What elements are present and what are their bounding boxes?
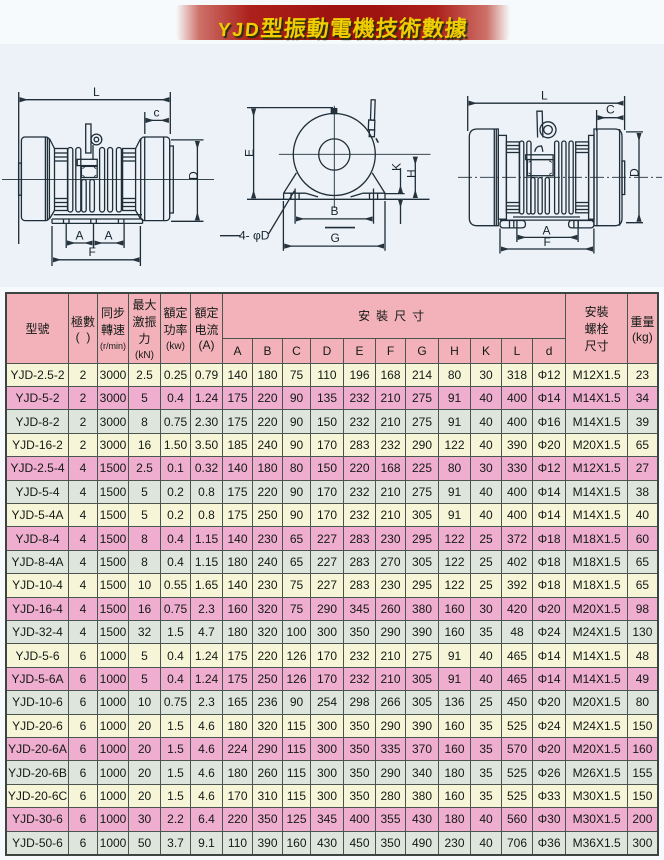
- svg-text:A: A: [105, 229, 113, 243]
- svg-text:L: L: [541, 89, 548, 103]
- svg-text:L: L: [93, 85, 100, 99]
- svg-text:B: B: [331, 204, 339, 218]
- svg-text:4- φD: 4- φD: [239, 229, 270, 243]
- svg-text:D: D: [187, 171, 201, 180]
- svg-text:D: D: [628, 168, 642, 177]
- svg-text:F: F: [89, 245, 96, 259]
- svg-text:G: G: [331, 231, 340, 245]
- svg-text:C: C: [606, 103, 615, 117]
- svg-text:A: A: [76, 229, 84, 243]
- svg-text:K: K: [390, 163, 404, 171]
- svg-text:H: H: [404, 169, 418, 178]
- svg-text:F: F: [544, 235, 551, 249]
- svg-text:c: c: [154, 106, 160, 120]
- svg-text:E: E: [243, 149, 257, 157]
